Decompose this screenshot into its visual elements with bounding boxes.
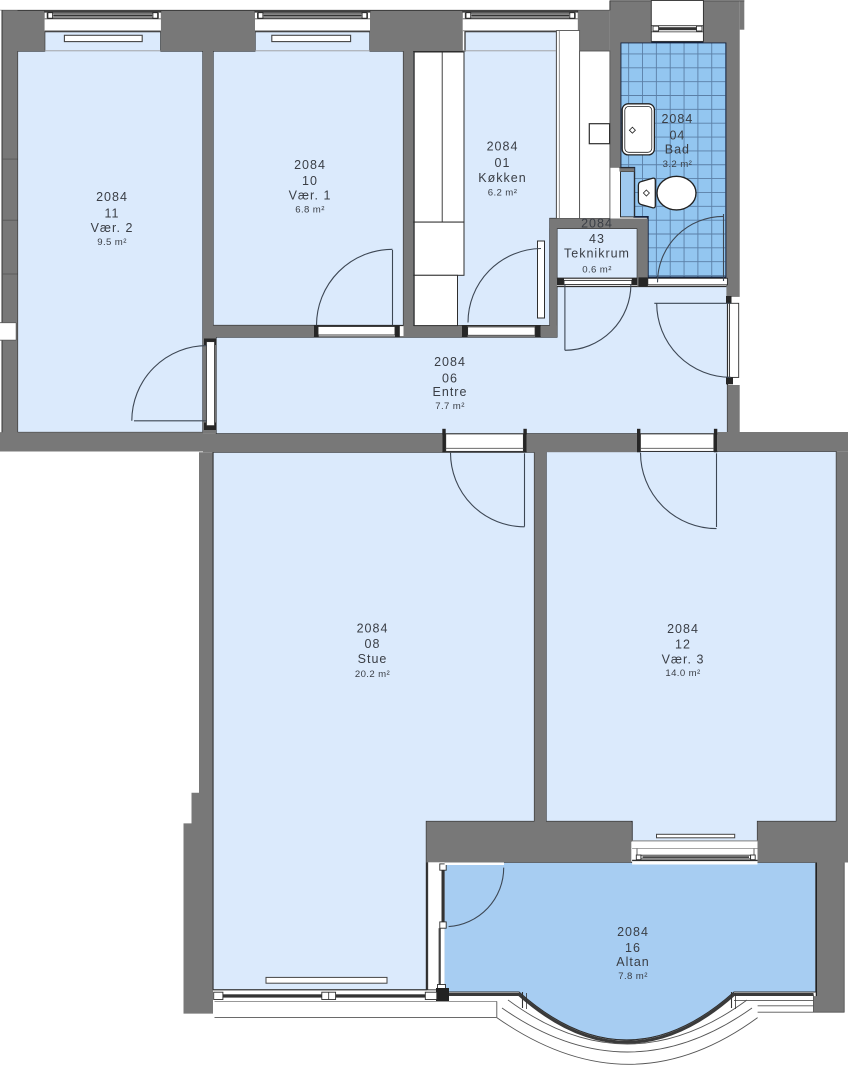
svg-text:2084: 2084 (294, 158, 326, 172)
svg-text:11: 11 (105, 207, 120, 221)
svg-text:2084: 2084 (667, 622, 699, 636)
svg-text:0.6 m²: 0.6 m² (582, 265, 612, 276)
svg-text:43: 43 (589, 232, 605, 246)
svg-text:2084: 2084 (661, 112, 693, 126)
svg-text:6.2 m²: 6.2 m² (488, 188, 518, 199)
svg-text:Køkken: Køkken (478, 171, 526, 185)
svg-text:01: 01 (495, 156, 511, 170)
svg-text:Bad: Bad (665, 143, 690, 157)
svg-text:6.8 m²: 6.8 m² (295, 204, 325, 215)
svg-text:04: 04 (669, 129, 685, 143)
svg-text:10: 10 (302, 174, 318, 188)
svg-text:Teknikrum: Teknikrum (564, 247, 630, 261)
svg-text:2084: 2084 (581, 216, 613, 230)
svg-text:2084: 2084 (487, 139, 519, 153)
svg-text:06: 06 (442, 372, 458, 386)
svg-text:16: 16 (625, 941, 641, 955)
svg-text:3.2 m²: 3.2 m² (663, 159, 693, 170)
svg-text:08: 08 (365, 637, 381, 651)
svg-text:9.5 m²: 9.5 m² (97, 237, 127, 248)
svg-text:Vær. 2: Vær. 2 (91, 221, 134, 235)
svg-text:2084: 2084 (617, 925, 649, 939)
svg-text:14.0 m²: 14.0 m² (665, 668, 701, 679)
svg-text:7.7 m²: 7.7 m² (435, 401, 465, 412)
svg-text:Stue: Stue (358, 652, 388, 666)
svg-text:2084: 2084 (434, 355, 466, 369)
svg-text:20.2 m²: 20.2 m² (355, 669, 391, 680)
svg-text:2084: 2084 (96, 190, 128, 204)
svg-text:Vær. 1: Vær. 1 (289, 189, 332, 203)
svg-text:Altan: Altan (616, 955, 650, 969)
svg-text:2084: 2084 (357, 621, 389, 635)
svg-text:Vær. 3: Vær. 3 (662, 653, 705, 667)
svg-text:12: 12 (675, 638, 691, 652)
svg-text:Entre: Entre (433, 385, 468, 399)
svg-text:7.8 m²: 7.8 m² (618, 971, 648, 982)
